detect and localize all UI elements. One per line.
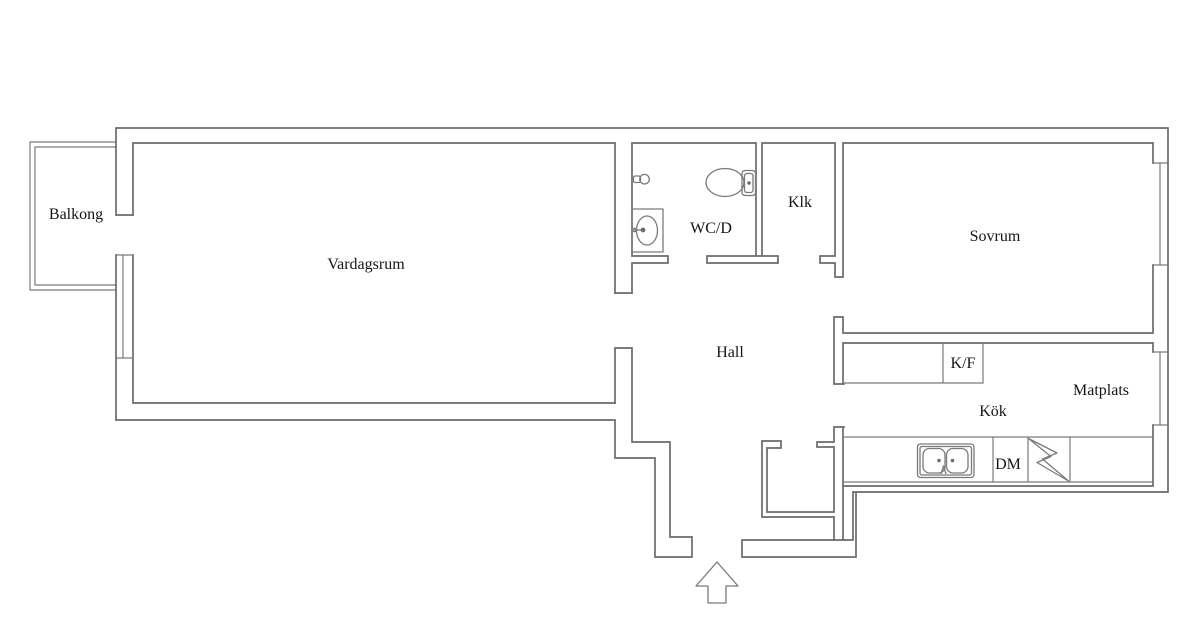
label-hall: Hall	[716, 344, 744, 361]
label-kok: Kök	[979, 403, 1007, 420]
room-walls	[133, 143, 1153, 540]
double-kitchen-sink-icon	[918, 444, 975, 478]
washbasin-icon	[632, 209, 663, 252]
window-icon	[1153, 352, 1168, 425]
label-matplats: Matplats	[1073, 382, 1129, 399]
floor-plan-page: Balkong Vardagsrum WC/D Klk Sovrum Hall …	[0, 0, 1200, 644]
stove-bolt-icon	[1029, 439, 1069, 482]
label-dm: DM	[995, 456, 1021, 473]
label-vardagsrum: Vardagsrum	[327, 256, 405, 273]
window-icon	[116, 255, 133, 358]
toilet-icon	[706, 169, 756, 197]
window-icon	[1153, 163, 1168, 265]
floor-plan-svg: Balkong Vardagsrum WC/D Klk Sovrum Hall …	[0, 0, 1200, 644]
label-wcd: WC/D	[690, 220, 732, 237]
label-sovrum: Sovrum	[970, 228, 1021, 245]
label-balkong: Balkong	[49, 206, 103, 223]
label-kf: K/F	[951, 355, 976, 372]
label-klk: Klk	[788, 194, 812, 211]
shower-mixer-icon	[634, 174, 650, 184]
entrance-arrow-icon	[696, 562, 738, 603]
